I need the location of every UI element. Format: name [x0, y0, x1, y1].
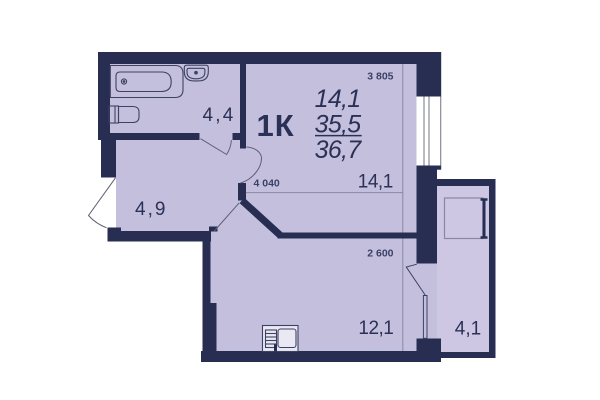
svg-text:35,5: 35,5 — [315, 111, 362, 139]
svg-text:14,1: 14,1 — [315, 85, 361, 113]
svg-text:3 805: 3 805 — [367, 71, 393, 83]
svg-text:36,7: 36,7 — [315, 136, 363, 164]
svg-text:12,1: 12,1 — [358, 318, 393, 339]
svg-text:1К: 1К — [257, 108, 295, 143]
svg-text:14,1: 14,1 — [358, 171, 393, 192]
svg-text:4,9: 4,9 — [135, 199, 167, 220]
svg-text:4,1: 4,1 — [455, 318, 481, 339]
svg-text:4,4: 4,4 — [203, 105, 236, 126]
svg-text:4 040: 4 040 — [254, 178, 280, 190]
svg-text:2 600: 2 600 — [367, 248, 393, 260]
